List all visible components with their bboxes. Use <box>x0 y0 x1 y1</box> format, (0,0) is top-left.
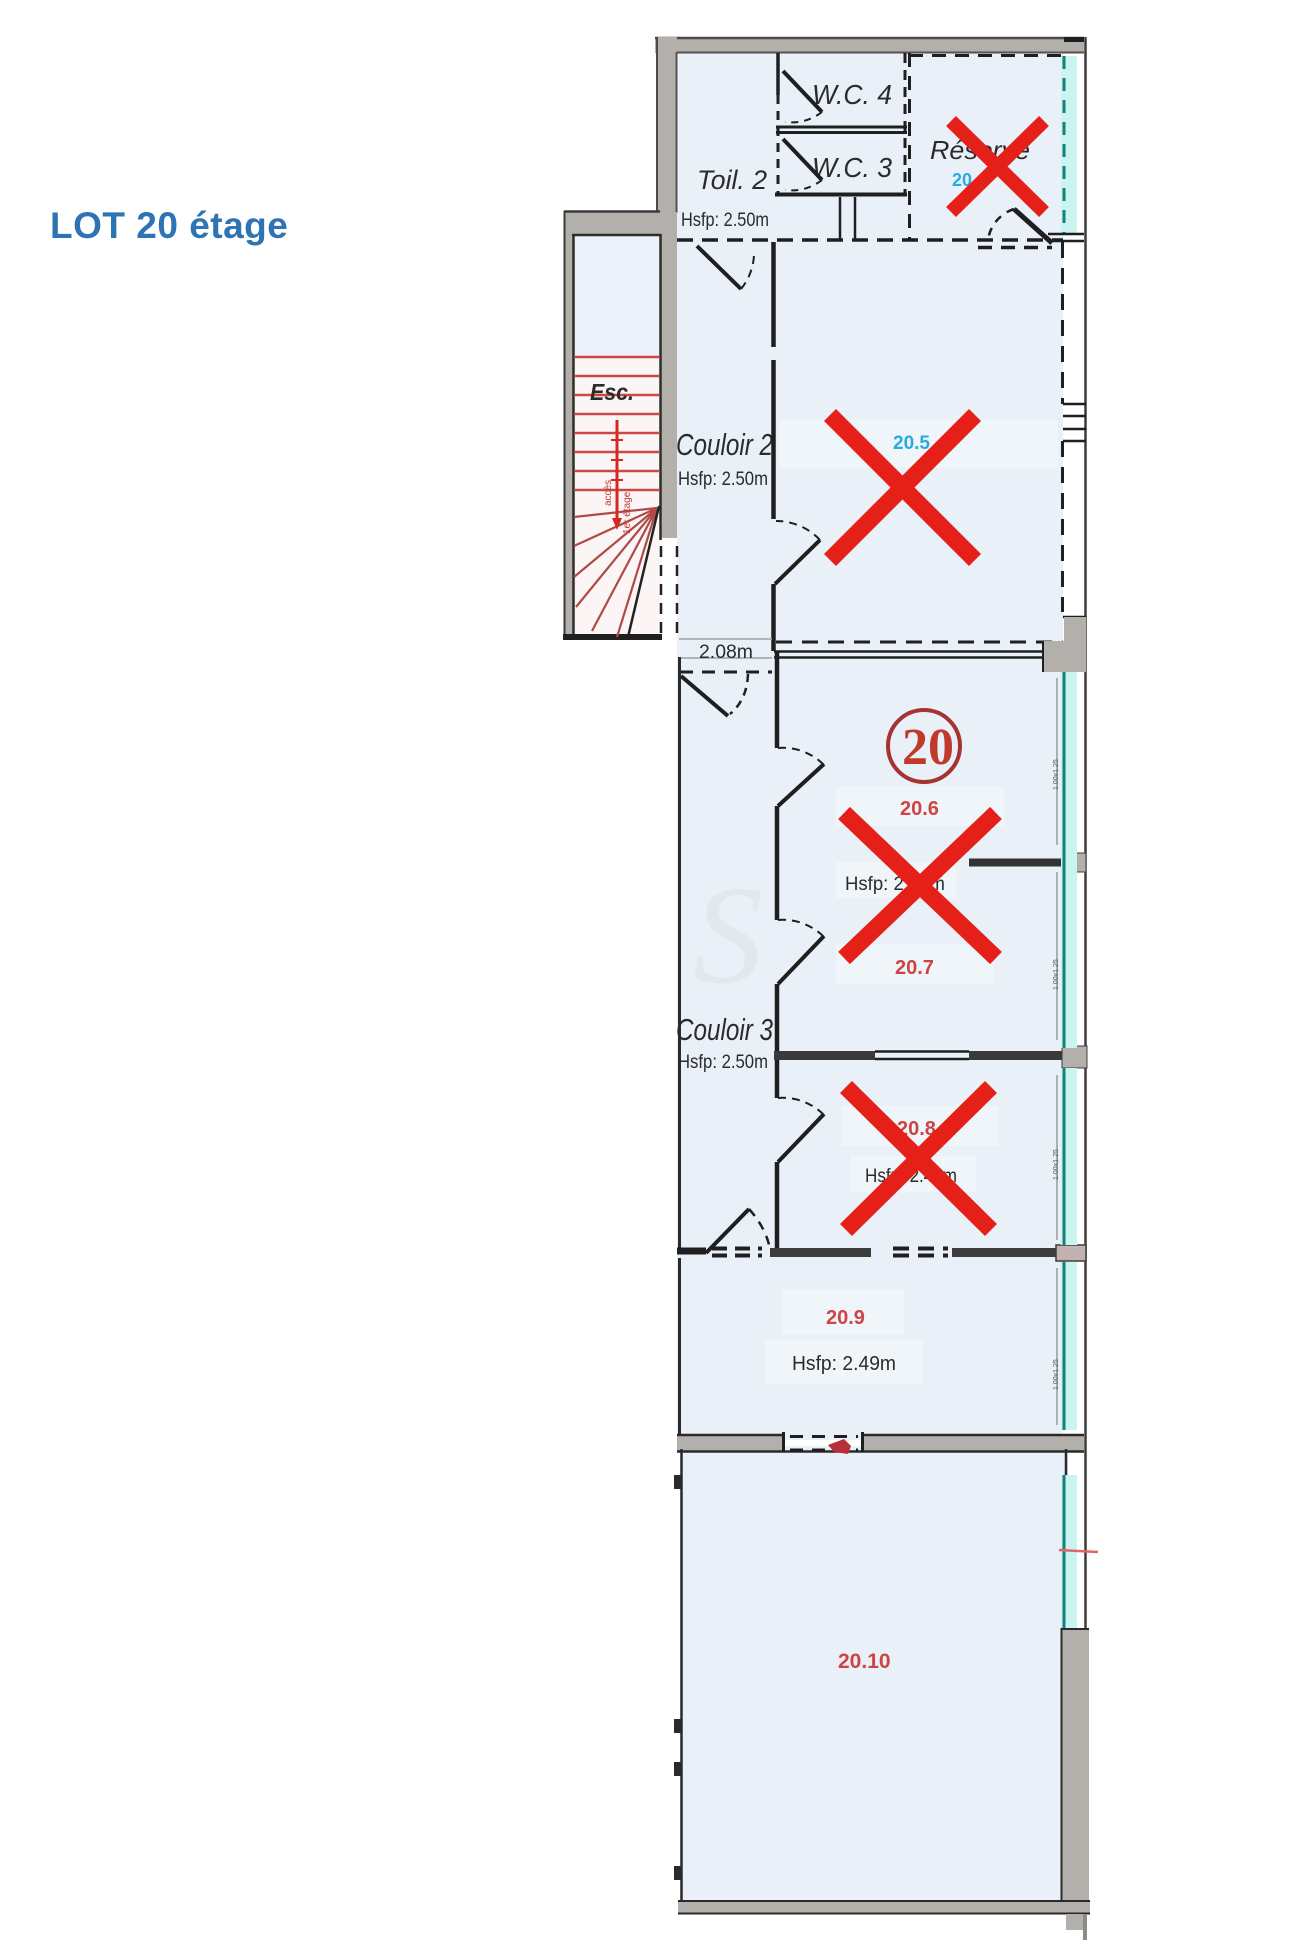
svg-text:Hsfp: 2.50m: Hsfp: 2.50m <box>678 469 768 490</box>
svg-text:1.00x1.25: 1.00x1.25 <box>1053 959 1060 990</box>
svg-text:20.9: 20.9 <box>826 1307 865 1329</box>
svg-text:1.00x1.25: 1.00x1.25 <box>1053 1359 1060 1390</box>
svg-text:Couloir 3: Couloir 3 <box>676 1012 773 1047</box>
svg-text:W.C. 3: W.C. 3 <box>812 152 892 183</box>
svg-text:1er étage: 1er étage <box>622 491 633 534</box>
svg-text:1.00x1.25: 1.00x1.25 <box>1053 1149 1060 1180</box>
svg-text:Toil. 2: Toil. 2 <box>697 165 767 195</box>
svg-text:accès: accès <box>603 480 614 506</box>
svg-text:20: 20 <box>902 719 954 776</box>
svg-text:20.10: 20.10 <box>838 1650 891 1673</box>
svg-text:W.C. 4: W.C. 4 <box>812 79 892 110</box>
svg-text:20.6: 20.6 <box>900 798 939 820</box>
svg-text:Hsfp: 2.50m: Hsfp: 2.50m <box>678 1052 768 1073</box>
svg-text:Hsfp: 2.50m: Hsfp: 2.50m <box>681 210 769 231</box>
svg-text:20.5: 20.5 <box>893 433 930 454</box>
svg-text:Hsfp: 2.49m: Hsfp: 2.49m <box>792 1353 896 1375</box>
svg-text:Esc.: Esc. <box>590 379 634 405</box>
svg-text:S: S <box>693 858 763 1013</box>
svg-text:20.7: 20.7 <box>895 957 934 979</box>
svg-text:2.08m: 2.08m <box>699 642 753 663</box>
svg-text:1.00x1.25: 1.00x1.25 <box>1053 759 1060 790</box>
svg-text:Couloir 2: Couloir 2 <box>676 427 773 462</box>
